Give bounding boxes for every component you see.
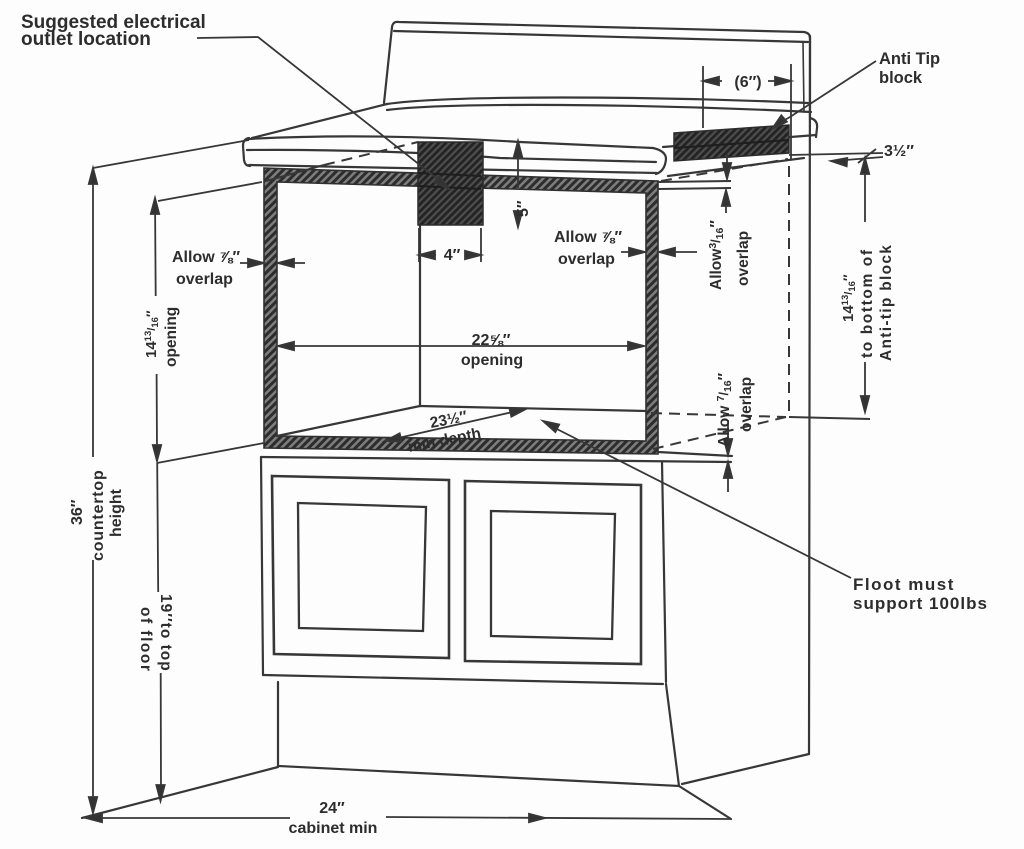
svg-text:block: block [879, 69, 923, 87]
svg-text:overlap: overlap [738, 377, 755, 432]
svg-text:3½′′: 3½′′ [884, 143, 914, 160]
svg-text:Anti-tip block: Anti-tip block [878, 244, 895, 361]
svg-text:Allow ⅞′′: Allow ⅞′′ [554, 229, 622, 246]
svg-text:overlap: overlap [735, 231, 752, 286]
svg-text:outlet location: outlet location [21, 29, 151, 50]
svg-text:Allow ⅞′′: Allow ⅞′′ [172, 249, 240, 266]
svg-text:24′′: 24′′ [319, 800, 345, 817]
svg-text:4′′: 4′′ [444, 247, 461, 264]
svg-text:36′′: 36′′ [69, 499, 86, 525]
svg-text:countertop: countertop [90, 469, 107, 561]
svg-text:opening: opening [163, 307, 180, 367]
svg-text:to bottom of: to bottom of [859, 248, 876, 358]
svg-text:cabinet min: cabinet min [289, 820, 378, 837]
svg-text:overlap: overlap [176, 271, 233, 288]
svg-text:22⅝′′: 22⅝′′ [472, 332, 511, 349]
svg-text:Anti Tip: Anti Tip [879, 50, 940, 68]
svg-text:opening: opening [461, 352, 523, 369]
svg-text:Floot must: Floot must [853, 575, 955, 594]
svg-text:overlap: overlap [558, 251, 615, 268]
svg-text:support 100lbs: support 100lbs [853, 594, 988, 613]
svg-text:5′′: 5′′ [515, 200, 532, 217]
svg-text:19′′to top: 19′′to top [157, 594, 174, 672]
svg-text:of floor: of floor [137, 607, 154, 672]
svg-text:height: height [108, 488, 125, 537]
svg-text:(6′′): (6′′) [734, 74, 761, 91]
